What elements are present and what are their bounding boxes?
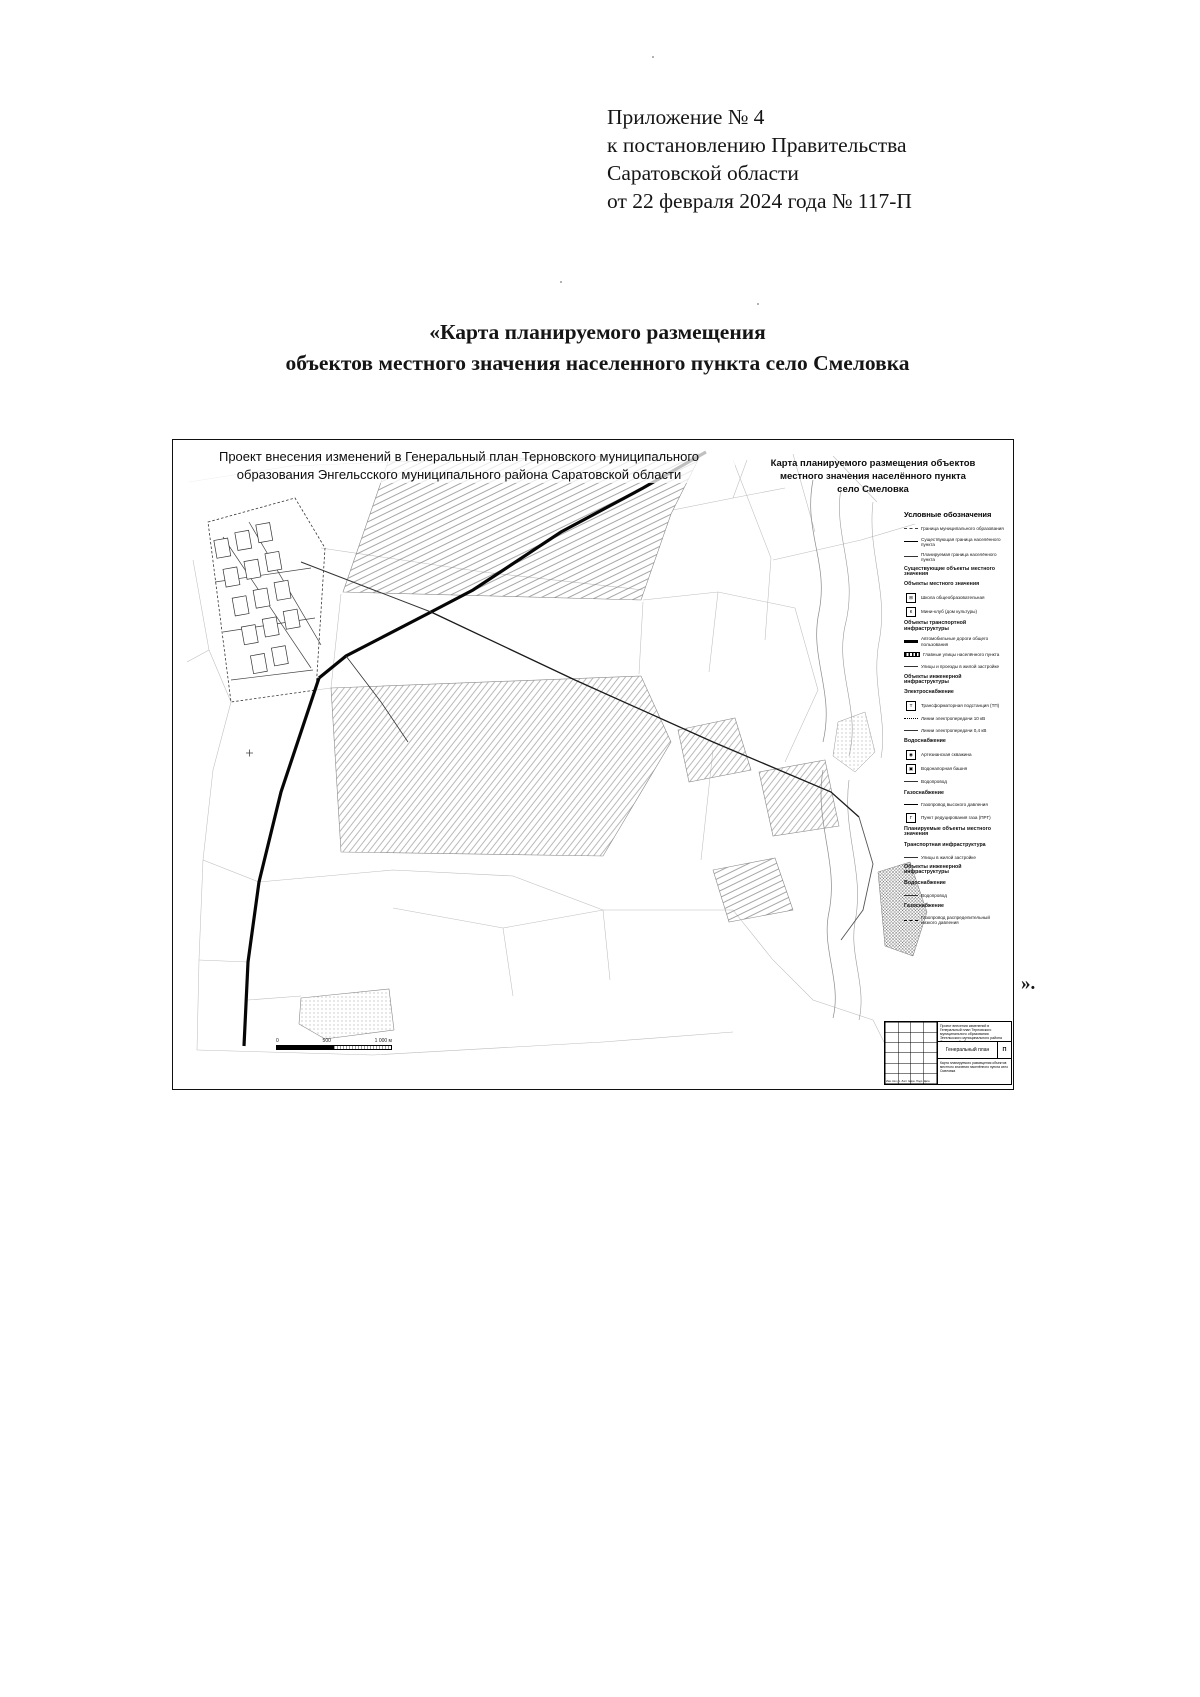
legend-item-label: Газопровод высокого давления xyxy=(921,802,988,807)
legend-item: ▣Водонапорная башня xyxy=(904,764,1007,774)
scale-bar-graphic xyxy=(276,1045,392,1050)
title-block-note: Карта планируемого размещения объектов м… xyxy=(938,1059,1011,1084)
map-header-right-line-3: село Смеловка xyxy=(745,483,1001,496)
legend-symbol-line xyxy=(904,804,918,805)
legend-item: Объекты инженерной инфраструктуры xyxy=(904,865,1007,875)
legend-item-label: Планируемые объекты местного значения xyxy=(904,827,1007,837)
legend-item: Главные улицы населённого пункта xyxy=(904,651,1007,658)
legend-symbol-icon: Г xyxy=(904,813,918,823)
hatched-fields xyxy=(331,454,839,922)
legend-item: Газопровод высокого давления xyxy=(904,801,1007,808)
legend-symbol-icon: Т xyxy=(904,701,918,711)
legend-symbol-line xyxy=(904,541,918,542)
village-grid xyxy=(208,498,325,702)
legend-symbol-dash xyxy=(904,920,918,921)
legend-item-label: Главные улицы населённого пункта xyxy=(923,652,999,657)
page-title: «Карта планируемого размещения объектов … xyxy=(5,317,1190,379)
legend-item-label: Пункт редуцирования газа (ПРГ) xyxy=(921,815,991,820)
map-header-right-line-1: Карта планируемого размещения объектов xyxy=(745,457,1001,470)
map-header-right: Карта планируемого размещения объектов м… xyxy=(745,457,1001,496)
legend-item-label: Транспортная инфраструктура xyxy=(904,843,986,848)
title-block-project: Проект внесения изменений в Генеральный … xyxy=(938,1022,1011,1042)
legend-item: Электроснабжение xyxy=(904,690,1007,697)
legend-item-label: Объекты инженерной инфраструктуры xyxy=(904,675,1007,685)
legend-symbol-thin xyxy=(904,895,918,896)
map-header-left-line-2: образования Энгельсского муниципального … xyxy=(183,466,735,484)
legend-item-label: Газопровод распределительный низкого дав… xyxy=(921,915,1007,925)
legend-symbol-thin xyxy=(904,730,918,731)
map-header-left-line-1: Проект внесения изменений в Генеральный … xyxy=(183,448,735,466)
legend-item: ТТрансформаторная подстанция (ТП) xyxy=(904,701,1007,711)
legend-item: Автомобильные дороги общего пользования xyxy=(904,636,1007,646)
scale-bar-labels: 0 500 1 000 м xyxy=(276,1038,392,1044)
legend-symbol-icon: ⊞ xyxy=(904,593,918,603)
legend-item: Объекты местного значения xyxy=(904,582,1007,589)
legend-item: Газопровод распределительный низкого дав… xyxy=(904,915,1007,925)
page-title-line-1: «Карта планируемого размещения xyxy=(5,317,1190,348)
legend-item-label: Существующие объекты местного значения xyxy=(904,567,1007,577)
legend-item: Улицы в жилой застройке xyxy=(904,854,1007,861)
legend-item-label: Газоснабжение xyxy=(904,791,944,796)
legend-item: Граница муниципального образования xyxy=(904,525,1007,532)
scale-bar-solid-segment xyxy=(277,1046,334,1049)
scale-label-0: 0 xyxy=(276,1038,279,1044)
scan-speck xyxy=(757,303,759,305)
legend-title: Условные обозначения xyxy=(904,510,1007,519)
legend-item: Линии электропередачи 10 кВ xyxy=(904,715,1007,722)
scan-speck xyxy=(560,281,562,283)
legend-item-label: Автомобильные дороги общего пользования xyxy=(921,636,1007,646)
legend-item: Водоснабжение xyxy=(904,880,1007,887)
legend-item: Существующая граница населённого пункта xyxy=(904,537,1007,547)
title-block-doc-title: Генеральный план xyxy=(938,1042,997,1058)
legend-symbol-bar xyxy=(904,640,918,643)
legend-item: Водопровод xyxy=(904,778,1007,785)
legend-item-label: Артезианская скважина xyxy=(921,752,972,757)
legend-item-label: Школа общеобразовательная xyxy=(921,595,985,600)
legend-item-label: Линии электропередачи 0,4 кВ xyxy=(921,728,986,733)
legend-item-label: Водоснабжение xyxy=(904,881,946,886)
scale-label-500: 500 xyxy=(323,1038,331,1044)
legend-symbol-thin xyxy=(904,781,918,782)
legend-symbol-icon: ◉ xyxy=(904,750,918,760)
legend-item-label: Граница муниципального образования xyxy=(921,526,1004,531)
legend-item: Водопровод xyxy=(904,892,1007,899)
legend-symbol-icon: К xyxy=(904,607,918,617)
page-title-line-2: объектов местного значения населенного п… xyxy=(5,348,1190,379)
title-block-row-doc: Генеральный план П xyxy=(938,1042,1011,1059)
legend-item: Линии электропередачи 0,4 кВ xyxy=(904,727,1007,734)
legend-item: Газоснабжение xyxy=(904,903,1007,910)
legend-symbol-dashdot xyxy=(904,528,918,529)
title-block: Изм. Кол.уч. Лист №док. Подп. Дата Проек… xyxy=(884,1021,1012,1085)
header-line: Саратовской области xyxy=(607,159,912,187)
legend-items: Граница муниципального образованияСущест… xyxy=(904,525,1007,925)
legend-item-label: Линии электропередачи 10 кВ xyxy=(921,716,985,721)
map-header-left: Проект внесения изменений в Генеральный … xyxy=(183,448,735,483)
legend-item: КМини-клуб (дом культуры) xyxy=(904,607,1007,617)
legend-item: ◉Артезианская скважина xyxy=(904,750,1007,760)
scan-speck xyxy=(652,56,654,58)
title-block-stage: П xyxy=(997,1042,1011,1058)
map-canvas xyxy=(173,440,1013,1089)
title-block-columns: Изм. Кол.уч. Лист №док. Подп. Дата xyxy=(886,1080,936,1083)
header-line: Приложение № 4 xyxy=(607,103,912,131)
scale-bar: 0 500 1 000 м xyxy=(276,1038,392,1050)
legend-item-label: Объекты инженерной инфраструктуры xyxy=(904,865,1007,875)
legend-item: Водоснабжение xyxy=(904,738,1007,745)
legend-symbol-barhatch xyxy=(904,652,920,657)
legend-item-label: Электроснабжение xyxy=(904,690,954,695)
legend-item: Планируемые объекты местного значения xyxy=(904,827,1007,837)
legend-item: Объекты транспортной инфраструктуры xyxy=(904,621,1007,631)
legend-item: Объекты инженерной инфраструктуры xyxy=(904,675,1007,685)
legend-item-label: Существующая граница населённого пункта xyxy=(921,537,1007,547)
legend-item-label: Трансформаторная подстанция (ТП) xyxy=(921,703,999,708)
document-header: Приложение № 4 к постановлению Правитель… xyxy=(607,103,912,215)
legend-item-label: Газоснабжение xyxy=(904,904,944,909)
legend-item: ⊞Школа общеобразовательная xyxy=(904,593,1007,603)
map-header-right-line-2: местного значения населённого пункта xyxy=(745,470,1001,483)
scale-bar-hatched-segment xyxy=(334,1046,391,1049)
legend-item-label: Объекты местного значения xyxy=(904,582,979,587)
legend-item: Существующие объекты местного значения xyxy=(904,567,1007,577)
legend-item: Планируемая граница населённого пункта xyxy=(904,552,1007,562)
legend-symbol-thin xyxy=(904,857,918,858)
legend-item-label: Водопровод xyxy=(921,893,947,898)
legend-item-label: Улицы и проезды в жилой застройке xyxy=(921,664,999,669)
header-line: от 22 февраля 2024 года № 117-П xyxy=(607,187,912,215)
header-line: к постановлению Правительства xyxy=(607,131,912,159)
legend-item-label: Улицы в жилой застройке xyxy=(921,855,976,860)
title-block-grid: Изм. Кол.уч. Лист №док. Подп. Дата xyxy=(885,1022,938,1084)
legend-item: Улицы и проезды в жилой застройке xyxy=(904,663,1007,670)
legend-symbol-dotted xyxy=(904,718,918,719)
scale-label-1000: 1 000 м xyxy=(375,1038,392,1044)
map-legend: Условные обозначения Граница муниципальн… xyxy=(904,510,1007,930)
map-figure: Проект внесения изменений в Генеральный … xyxy=(172,439,1014,1090)
legend-item: Газоснабжение xyxy=(904,790,1007,797)
legend-symbol-thin xyxy=(904,666,918,667)
title-block-text: Проект внесения изменений в Генеральный … xyxy=(938,1022,1011,1084)
legend-item-label: Планируемая граница населённого пункта xyxy=(921,552,1007,562)
legend-item: ГПункт редуцирования газа (ПРГ) xyxy=(904,813,1007,823)
legend-symbol-icon: ▣ xyxy=(904,764,918,774)
legend-item-label: Водопровод xyxy=(921,779,947,784)
legend-item-label: Водонапорная башня xyxy=(921,766,967,771)
legend-item-label: Мини-клуб (дом культуры) xyxy=(921,609,977,614)
legend-item-label: Водоснабжение xyxy=(904,739,946,744)
legend-symbol-thin xyxy=(904,556,918,557)
legend-item: Транспортная инфраструктура xyxy=(904,842,1007,849)
closing-mark: ». xyxy=(1021,973,1035,995)
legend-item-label: Объекты транспортной инфраструктуры xyxy=(904,621,1007,631)
